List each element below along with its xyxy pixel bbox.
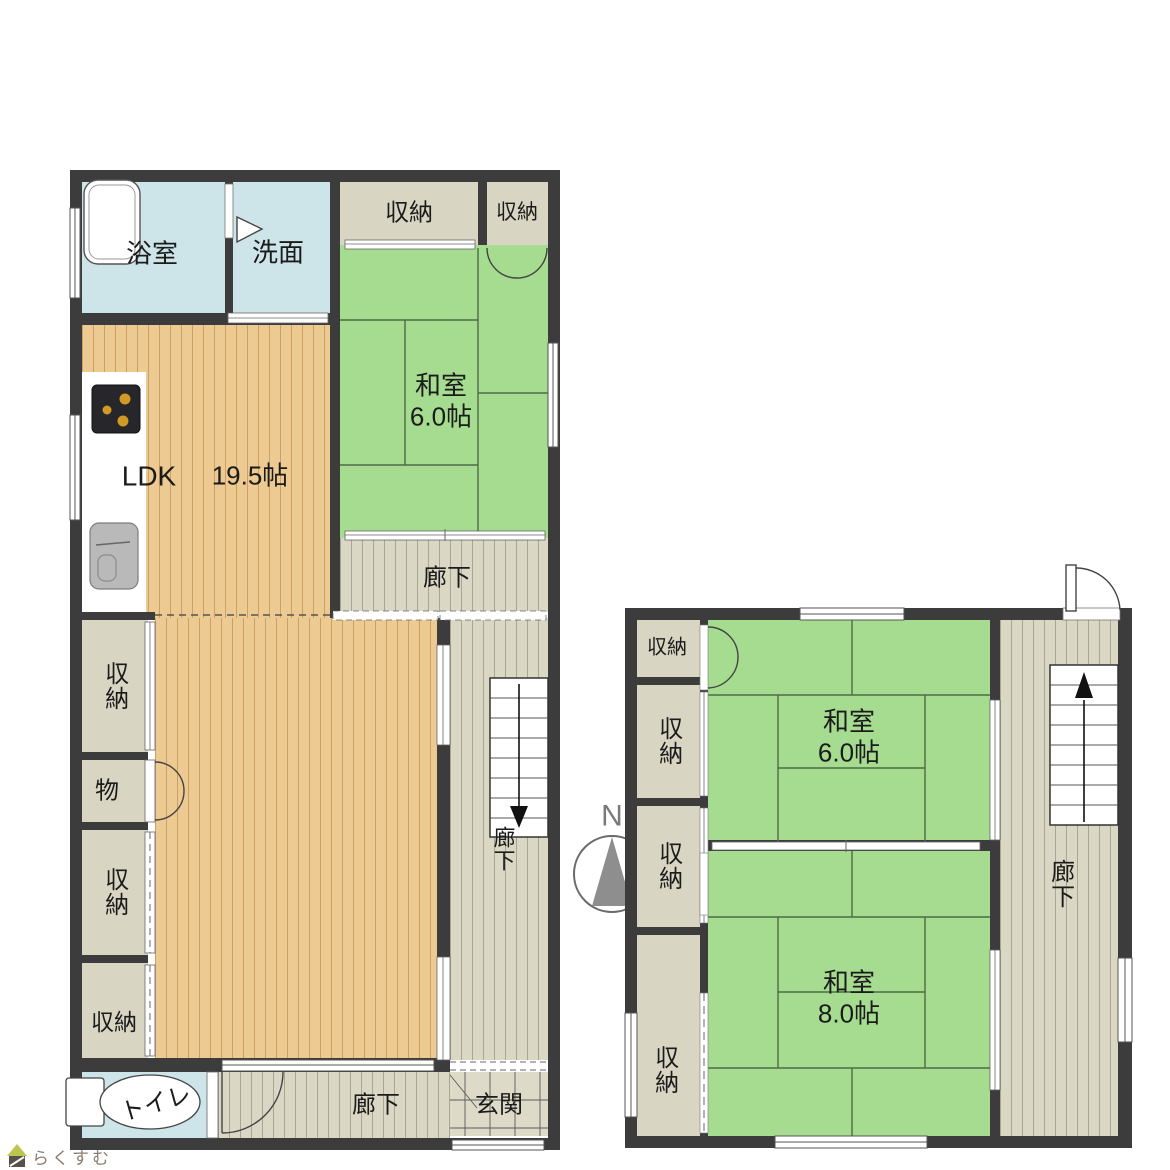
- floor2-washitsu8-size: 8.0帖: [818, 1000, 880, 1027]
- floor2-washitsu8-name: 和室: [823, 969, 875, 996]
- floor1-entrance-label: 玄関: [475, 1092, 523, 1117]
- floor1-closet-top-left-label: 収納: [385, 200, 433, 225]
- floor1-washroom-label: 洗面: [252, 239, 304, 266]
- linework-layer: [0, 0, 1170, 1170]
- floor2-washitsu6-name: 和室: [823, 708, 875, 735]
- stove-icon: [92, 385, 140, 433]
- door-swings: [155, 217, 1120, 1133]
- floor1-closet-west-1-label: 収納: [101, 661, 126, 711]
- floor2-washitsu6-size: 6.0帖: [818, 739, 880, 766]
- floor1-windows: [70, 184, 558, 1150]
- floorplan-canvas: 浴室 洗面 収納 収納 和室 6.0帖 LDK 19.5帖 廊下 収納 物 収納…: [0, 0, 1170, 1170]
- floor2-tatami-lines: [708, 620, 990, 1136]
- floor2-closet-1-label: 収納: [647, 638, 687, 659]
- floor1-closet-west-2-label: 収納: [101, 867, 126, 917]
- floor1-bath-label: 浴室: [126, 240, 178, 267]
- floor2-closet-3-label: 収納: [655, 841, 680, 891]
- floor1-washitsu-size: 6.0帖: [410, 403, 472, 430]
- floor1-hall-upper-label: 廊下: [423, 565, 471, 590]
- compass-north-label: N: [601, 800, 623, 832]
- kitchen-sink-icon: [90, 523, 138, 589]
- floor1-sliding-doors: [145, 240, 548, 1138]
- floor1-stairs: [490, 678, 548, 837]
- floor1-closet-west-3-label: 収納: [91, 1010, 137, 1034]
- floor2-closet-2-label: 収納: [655, 716, 680, 766]
- floor1-closet-mono-label: 物: [95, 778, 119, 803]
- floor1-washitsu-name: 和室: [415, 372, 467, 399]
- logo-text: らくすむ: [32, 1144, 112, 1169]
- floor2-sliding-doors: [700, 625, 1000, 1133]
- floor1-hall-lower-label: 廊下: [352, 1092, 400, 1117]
- floor1-ldk-size: 19.5帖: [212, 462, 289, 489]
- floor2-stairs: [1050, 665, 1118, 825]
- floor1-ldk-name: LDK: [122, 461, 176, 490]
- floor2-closet-4-label: 収納: [651, 1045, 676, 1095]
- floor1-hall-stair-label: 廊下: [491, 826, 514, 872]
- floor2-hall-label: 廊下: [1047, 859, 1072, 909]
- floor1-closet-top-right-label: 収納: [496, 202, 538, 224]
